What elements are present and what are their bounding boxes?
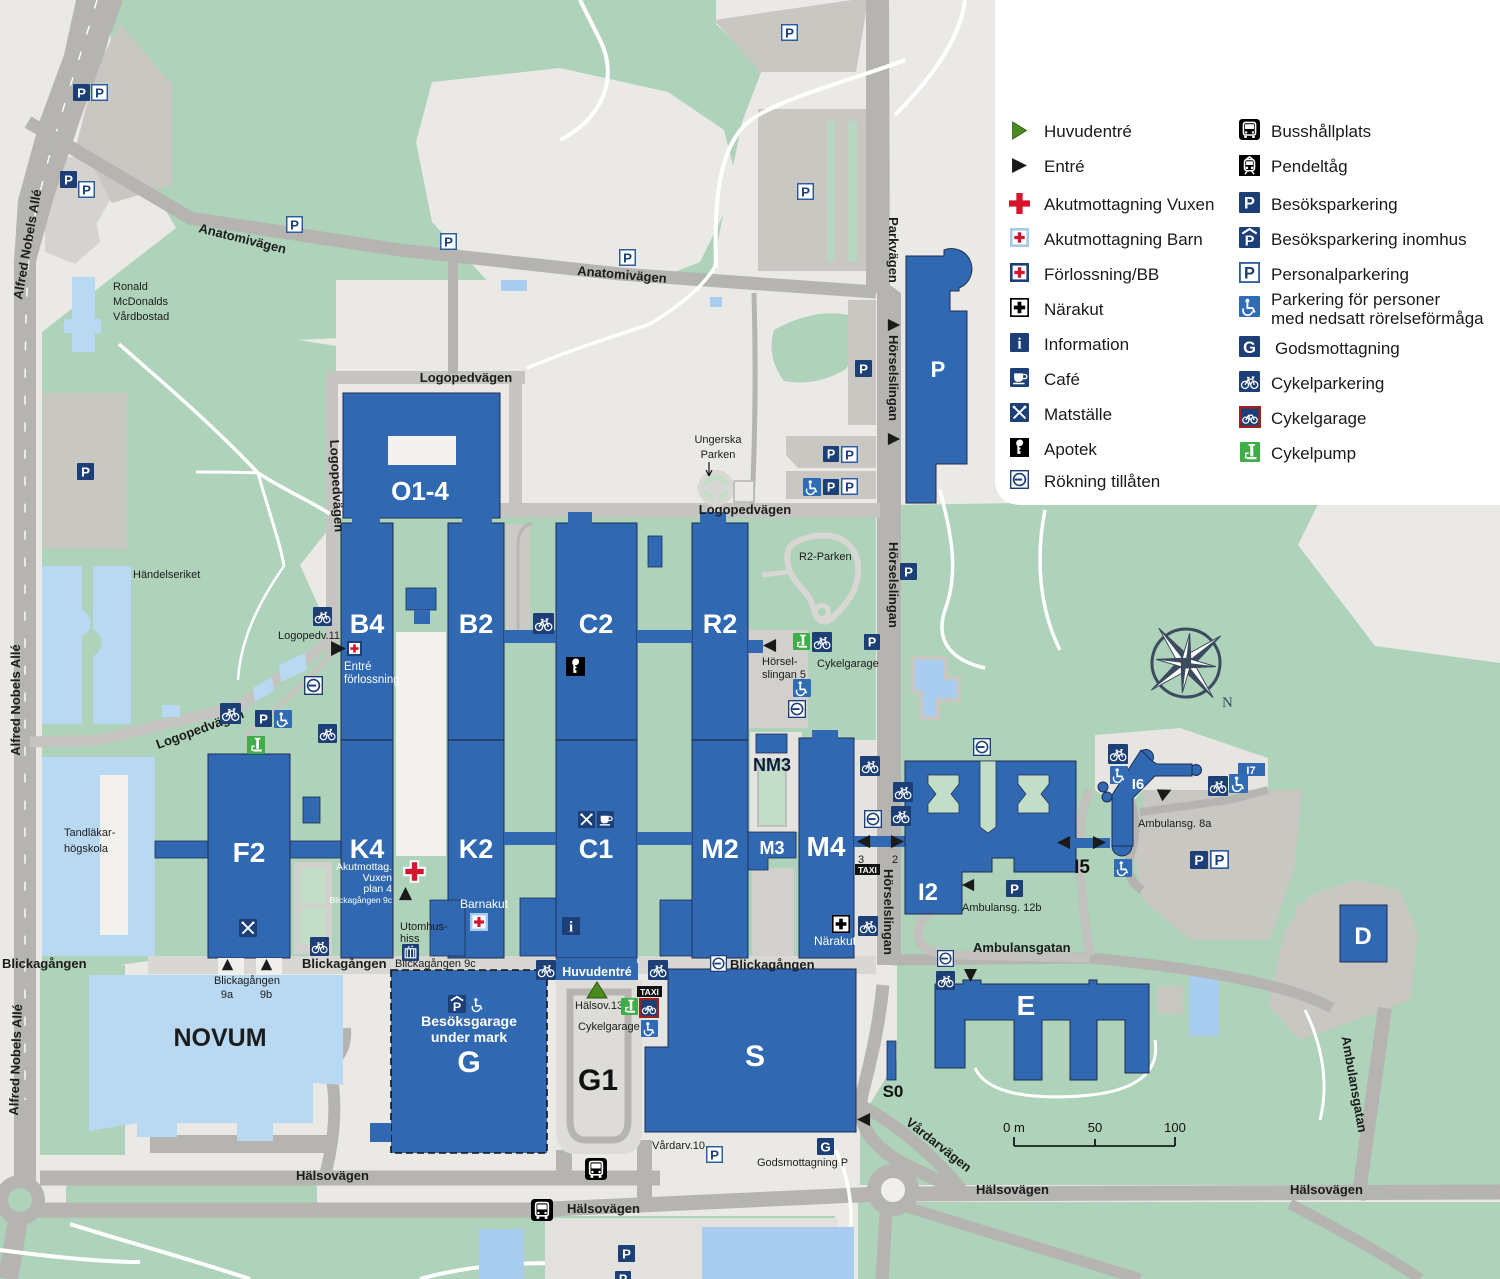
svg-text:M3: M3: [759, 838, 784, 858]
svg-text:K2: K2: [459, 834, 494, 864]
svg-text:I5: I5: [1074, 857, 1090, 878]
svg-text:M2: M2: [701, 834, 739, 864]
svg-text:R2: R2: [703, 609, 738, 639]
svg-text:Entré: Entré: [1044, 157, 1085, 176]
svg-text:D: D: [1354, 923, 1371, 950]
svg-text:under mark: under mark: [431, 1029, 507, 1045]
svg-text:Parken: Parken: [701, 449, 736, 461]
svg-text:Alfred Nobels Allé: Alfred Nobels Allé: [8, 644, 23, 755]
svg-text:NOVUM: NOVUM: [173, 1024, 266, 1052]
svg-text:Hörsel-: Hörsel-: [762, 656, 798, 668]
svg-text:Logopedvägen: Logopedvägen: [420, 370, 513, 385]
svg-text:Ungerska: Ungerska: [694, 434, 742, 446]
svg-text:Huvudentré: Huvudentré: [562, 965, 632, 979]
svg-text:Ambulansg. 8a: Ambulansg. 8a: [1138, 818, 1212, 830]
svg-text:Akutmottagning Vuxen: Akutmottagning Vuxen: [1044, 195, 1214, 214]
svg-text:K4: K4: [350, 834, 385, 864]
svg-text:Besöksgarage: Besöksgarage: [421, 1013, 517, 1029]
svg-text:Förlossning/BB: Förlossning/BB: [1044, 265, 1159, 284]
svg-text:Akutmottagning Barn: Akutmottagning Barn: [1044, 230, 1203, 249]
svg-text:R2-Parken: R2-Parken: [799, 551, 852, 563]
svg-text:Godsmottagning: Godsmottagning: [1275, 339, 1400, 358]
svg-text:Rökning tillåten: Rökning tillåten: [1044, 472, 1160, 491]
svg-text:F2: F2: [233, 837, 266, 868]
svg-text:Blickagången: Blickagången: [2, 956, 87, 971]
svg-text:högskola: högskola: [64, 843, 109, 855]
svg-text:S: S: [745, 1040, 765, 1073]
svg-text:Ambulansg. 12b: Ambulansg. 12b: [962, 902, 1042, 914]
svg-text:Cykelgarage: Cykelgarage: [578, 1021, 640, 1033]
svg-text:Händelseriket: Händelseriket: [133, 569, 200, 581]
svg-text:Blickagången: Blickagången: [730, 957, 815, 972]
svg-text:Logopedv.11: Logopedv.11: [278, 630, 340, 642]
svg-text:Ronald: Ronald: [113, 281, 148, 293]
svg-text:I2: I2: [918, 879, 938, 906]
svg-text:0 m: 0 m: [1003, 1120, 1025, 1135]
svg-text:P: P: [931, 357, 946, 382]
svg-text:3: 3: [858, 854, 864, 866]
svg-text:Godsmottagning P: Godsmottagning P: [757, 1157, 848, 1169]
svg-text:Busshållplats: Busshållplats: [1271, 122, 1371, 141]
svg-text:E: E: [1017, 990, 1036, 1021]
svg-text:hiss: hiss: [400, 933, 420, 945]
svg-text:C2: C2: [579, 609, 614, 639]
svg-text:Matställe: Matställe: [1044, 405, 1112, 424]
svg-text:100: 100: [1164, 1120, 1186, 1135]
svg-text:Besöksparkering: Besöksparkering: [1271, 195, 1398, 214]
svg-text:Cykelgarage: Cykelgarage: [1271, 409, 1366, 428]
svg-text:Hälsovägen: Hälsovägen: [1290, 1182, 1363, 1197]
svg-text:Huvudentré: Huvudentré: [1044, 122, 1132, 141]
svg-text:NM3: NM3: [753, 755, 791, 775]
svg-text:TAXI: TAXI: [640, 987, 659, 997]
svg-text:9b: 9b: [260, 989, 272, 1001]
svg-text:Ambulansgatan: Ambulansgatan: [973, 940, 1071, 955]
svg-text:O1-4: O1-4: [391, 476, 449, 506]
svg-text:G: G: [457, 1046, 480, 1079]
svg-text:Cykelpump: Cykelpump: [1271, 444, 1356, 463]
svg-text:Tandläkar-: Tandläkar-: [64, 827, 116, 839]
svg-text:Närakut: Närakut: [1044, 300, 1104, 319]
svg-text:Blickagången: Blickagången: [214, 975, 280, 987]
svg-text:Personalparkering: Personalparkering: [1271, 265, 1409, 284]
svg-text:G1: G1: [578, 1064, 618, 1097]
svg-text:Barnakut: Barnakut: [460, 897, 509, 911]
svg-text:Utomhus-: Utomhus-: [400, 921, 448, 933]
svg-text:plan 4: plan 4: [363, 883, 392, 895]
svg-text:Hälsovägen: Hälsovägen: [296, 1168, 369, 1183]
svg-text:I6: I6: [1132, 776, 1145, 793]
svg-text:B4: B4: [350, 609, 385, 639]
svg-text:50: 50: [1088, 1120, 1102, 1135]
svg-text:Parkvägen: Parkvägen: [886, 217, 901, 283]
svg-text:Entré: Entré: [344, 661, 372, 673]
svg-text:C1: C1: [579, 834, 614, 864]
svg-text:Besöksparkering inomhus: Besöksparkering inomhus: [1271, 230, 1467, 249]
svg-text:9a: 9a: [221, 989, 234, 1001]
svg-text:Café: Café: [1044, 370, 1080, 389]
svg-text:Hörselslingan: Hörselslingan: [886, 542, 901, 628]
svg-text:N: N: [1222, 695, 1233, 711]
svg-text:Hörselslingan: Hörselslingan: [886, 335, 901, 421]
svg-text:Hälsovägen: Hälsovägen: [976, 1182, 1049, 1197]
svg-text:Hälsov.13: Hälsov.13: [575, 1000, 623, 1012]
svg-text:S0: S0: [883, 1082, 904, 1101]
svg-text:Information: Information: [1044, 335, 1129, 354]
svg-text:förlossning: förlossning: [344, 674, 400, 686]
svg-text:Blickagången: Blickagången: [302, 956, 387, 971]
svg-text:Blickagången 9c: Blickagången 9c: [330, 895, 393, 905]
svg-text:Parkering för personer: Parkering för personer: [1271, 290, 1440, 309]
svg-text:Hörselslingan: Hörselslingan: [881, 869, 896, 955]
svg-text:Hälsovägen: Hälsovägen: [567, 1201, 640, 1216]
svg-text:Pendeltåg: Pendeltåg: [1271, 157, 1348, 176]
svg-text:TAXI: TAXI: [858, 865, 877, 875]
svg-text:Apotek: Apotek: [1044, 440, 1097, 459]
svg-text:2: 2: [892, 854, 898, 866]
svg-text:Cykelgarage: Cykelgarage: [817, 658, 879, 670]
svg-text:McDonalds: McDonalds: [113, 296, 169, 308]
svg-text:Cykelparkering: Cykelparkering: [1271, 374, 1384, 393]
svg-text:B2: B2: [459, 609, 494, 639]
svg-text:M4: M4: [807, 831, 846, 862]
svg-text:Närakut: Närakut: [814, 934, 857, 948]
svg-text:Vårdbostad: Vårdbostad: [113, 311, 169, 323]
svg-text:med nedsatt rörelseförmåga: med nedsatt rörelseförmåga: [1271, 309, 1484, 328]
svg-text:Logopedvägen: Logopedvägen: [699, 502, 792, 517]
svg-text:Vårdarv.10: Vårdarv.10: [652, 1140, 705, 1152]
